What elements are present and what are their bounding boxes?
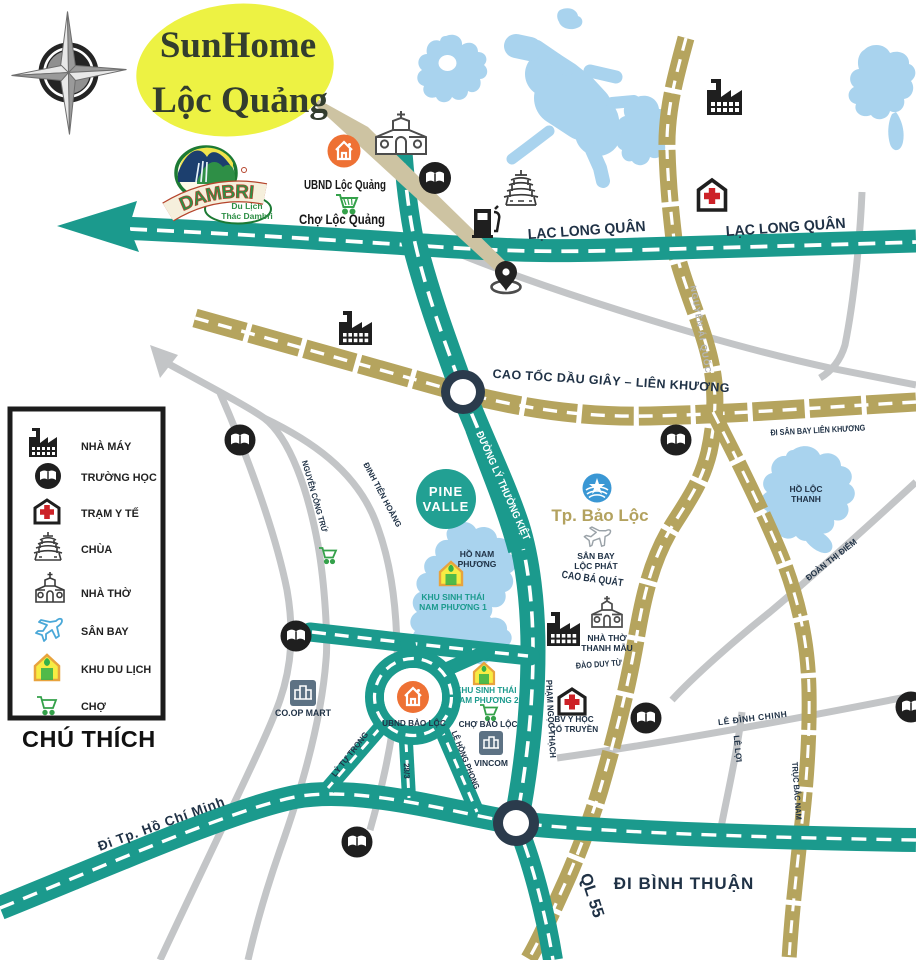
svg-text:BV Y HỌC: BV Y HỌC: [554, 715, 593, 724]
svg-text:Tp. Bảo Lộc: Tp. Bảo Lộc: [551, 506, 648, 525]
svg-text:PINE: PINE: [429, 484, 463, 499]
svg-text:ĐI BÌNH THUẬN: ĐI BÌNH THUẬN: [614, 874, 755, 893]
svg-text:SÂN BAY: SÂN BAY: [81, 625, 129, 638]
svg-text:TRƯỜNG HỌC: TRƯỜNG HỌC: [81, 471, 157, 484]
svg-text:NAM PHƯƠNG 2: NAM PHƯƠNG 2: [453, 696, 519, 705]
svg-text:NHÀ THỜ: NHÀ THỜ: [81, 587, 132, 600]
svg-text:TRẠM Y TẾ: TRẠM Y TẾ: [81, 507, 139, 520]
svg-text:NHÀ THỜ: NHÀ THỜ: [587, 632, 627, 643]
svg-text:KHU SINH THÁI: KHU SINH THÁI: [421, 592, 484, 602]
svg-text:HỒ LỘC: HỒ LỘC: [789, 483, 822, 494]
svg-text:SÂN BAY: SÂN BAY: [577, 550, 615, 561]
svg-text:VINCOM: VINCOM: [474, 758, 508, 768]
svg-text:KHU SINH THÁI: KHU SINH THÁI: [456, 685, 517, 695]
svg-text:THANH MẪU: THANH MẪU: [581, 642, 632, 653]
svg-text:28/3: 28/3: [402, 763, 412, 779]
svg-text:CO.OP MART: CO.OP MART: [275, 708, 332, 718]
svg-text:Chợ Lộc Quảng: Chợ Lộc Quảng: [299, 211, 385, 227]
svg-text:HỒ NAM: HỒ NAM: [460, 548, 494, 559]
svg-text:CHÙA: CHÙA: [81, 543, 112, 556]
svg-text:Lộc Quảng: Lộc Quảng: [152, 80, 328, 121]
svg-text:KHU DU LỊCH: KHU DU LỊCH: [81, 664, 151, 676]
svg-text:CHỢ: CHỢ: [81, 701, 107, 713]
svg-text:CHÚ THÍCH: CHÚ THÍCH: [22, 725, 156, 752]
svg-text:UBND BẢO LỘC: UBND BẢO LỘC: [382, 717, 446, 728]
svg-text:LỘC PHÁT: LỘC PHÁT: [574, 560, 618, 571]
svg-text:CHỢ BẢO LỘC: CHỢ BẢO LỘC: [459, 718, 518, 729]
svg-text:Thác Dambri: Thác Dambri: [221, 211, 273, 221]
svg-text:CỔ TRUYỀN: CỔ TRUYỀN: [550, 723, 598, 734]
svg-text:SunHome: SunHome: [160, 25, 316, 66]
svg-text:VALLE: VALLE: [423, 499, 470, 514]
svg-text:NAM PHƯƠNG 1: NAM PHƯƠNG 1: [419, 602, 487, 612]
svg-text:NHÀ MÁY: NHÀ MÁY: [81, 440, 132, 453]
svg-text:UBND Lộc Quảng: UBND Lộc Quảng: [304, 178, 386, 192]
svg-text:THANH: THANH: [791, 494, 821, 504]
svg-text:PHƯƠNG: PHƯƠNG: [458, 559, 497, 569]
